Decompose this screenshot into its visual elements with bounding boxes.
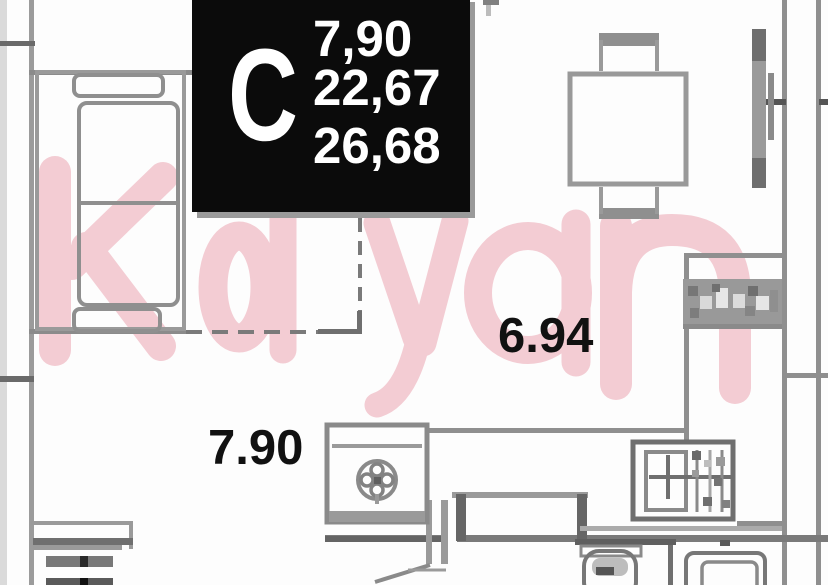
svg-text:22,67: 22,67 xyxy=(313,59,441,116)
svg-text:6.94: 6.94 xyxy=(498,309,593,363)
svg-text:7.90: 7.90 xyxy=(208,421,303,475)
svg-text:26,68: 26,68 xyxy=(313,117,441,174)
svg-text:С: С xyxy=(228,23,298,169)
